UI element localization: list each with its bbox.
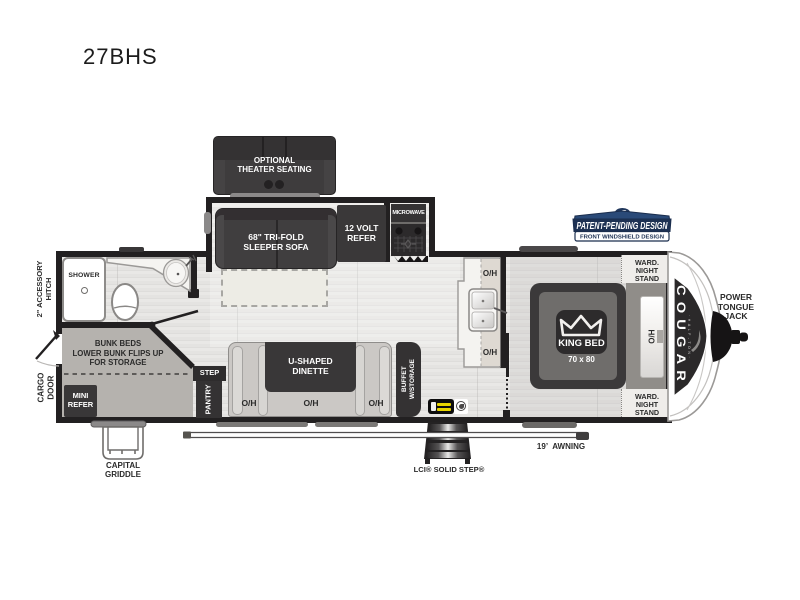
- svg-text:FRONT WINDSHIELD DESIGN: FRONT WINDSHIELD DESIGN: [580, 235, 664, 241]
- svg-text:·HALF-TON·: ·HALF-TON·: [687, 315, 691, 359]
- svg-text:PATENT-PENDING DESIGN: PATENT-PENDING DESIGN: [577, 221, 669, 232]
- svg-text:COUGAR: COUGAR: [674, 285, 688, 387]
